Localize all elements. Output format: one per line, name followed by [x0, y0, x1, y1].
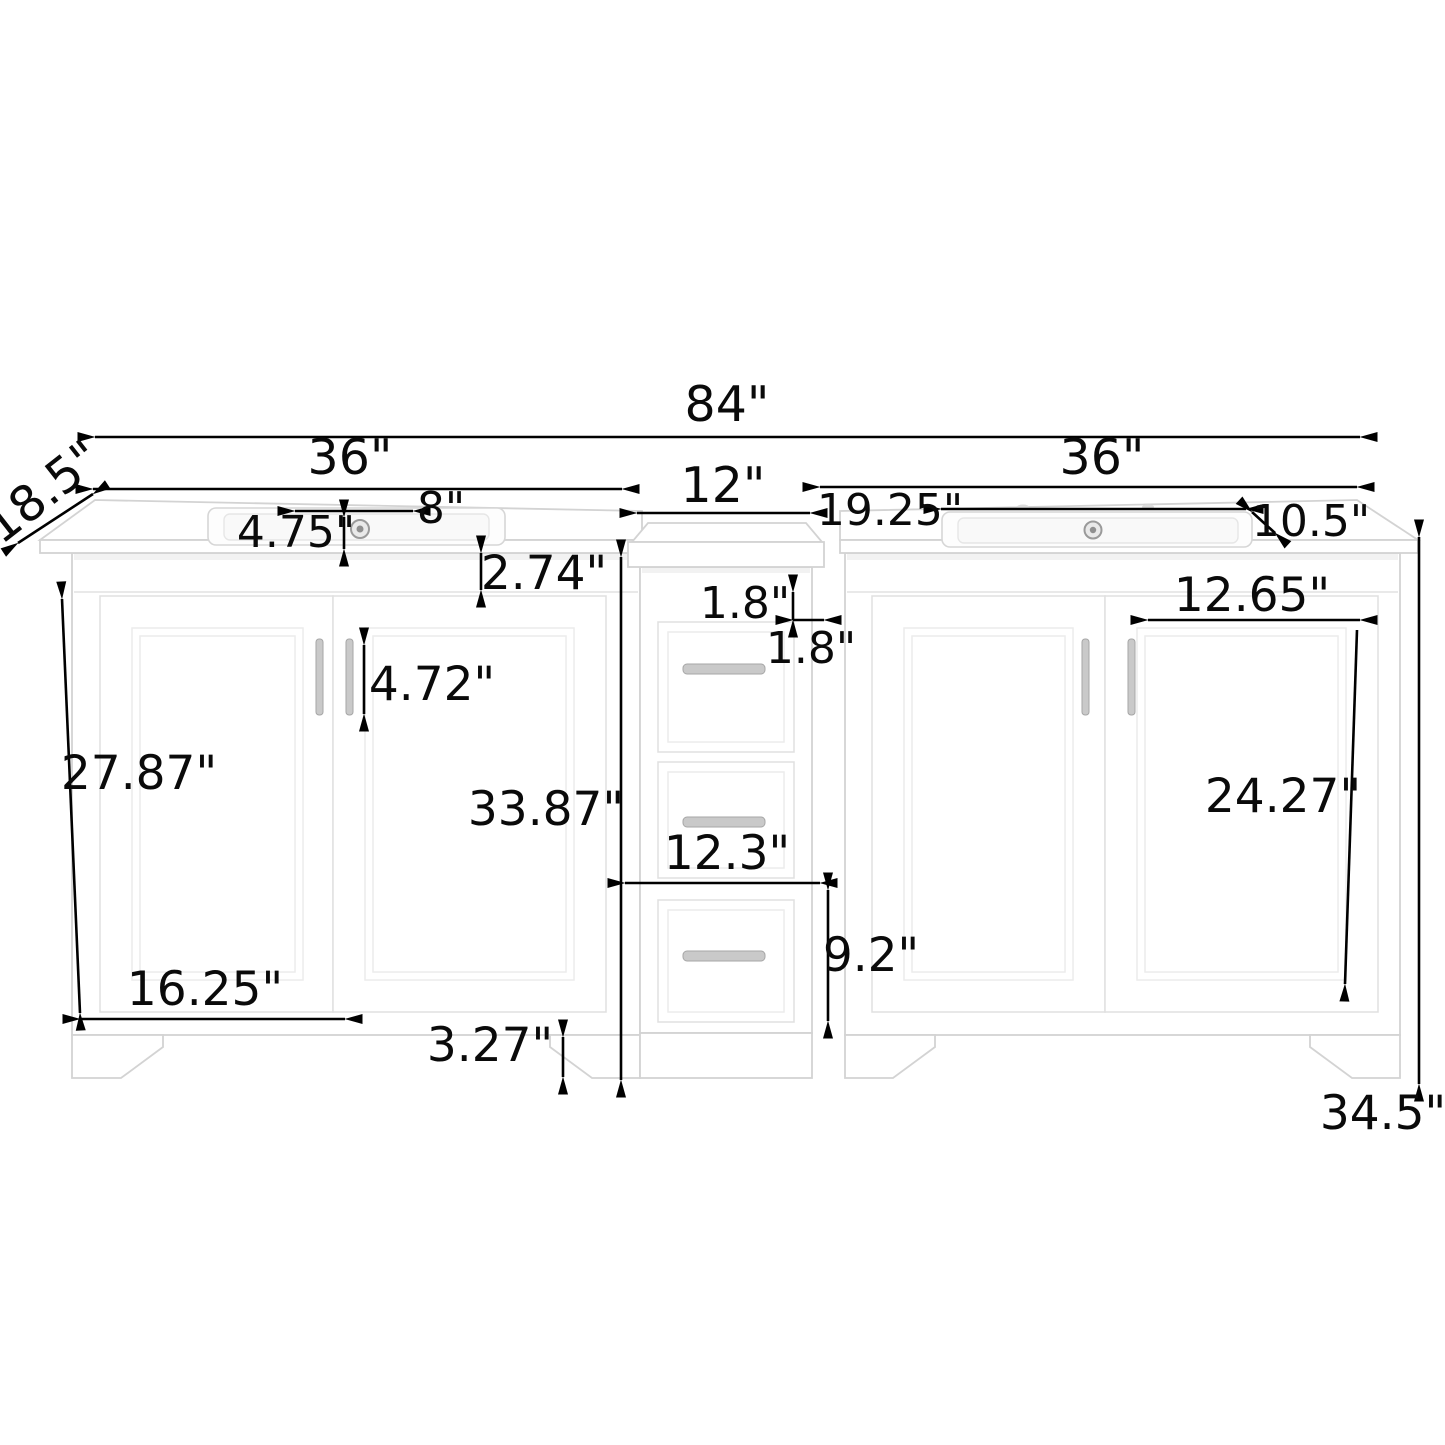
tower-top-edge [628, 542, 824, 567]
dim-right-vanity-width-label: 36" [1060, 429, 1145, 486]
dim-handle-length-label: 4.72" [369, 657, 495, 712]
right-vanity-right-door-handle [1128, 639, 1135, 715]
dim-center-drawer-width-label: 12.3" [664, 826, 790, 881]
right-vanity-left-door-handle [1082, 639, 1089, 715]
dim-right-door-height-label: 24.27" [1205, 769, 1361, 824]
dim-faucet-setback: 4.75" [237, 507, 355, 558]
dim-right-counter-right-offset: 10.5" [1252, 496, 1370, 547]
tower-drawer-3-handle [683, 951, 765, 961]
left-vanity-left-foot [72, 1035, 163, 1078]
dim-toe-kick-height-label: 3.27" [427, 1018, 553, 1073]
left-vanity-left-door-handle [316, 639, 323, 715]
left-vanity-left-door [100, 596, 333, 1012]
tower-counter-shadow [642, 568, 810, 573]
right-vanity-right-foot [1310, 1035, 1400, 1078]
dim-overall-width: 84" [95, 376, 1360, 437]
dim-right-sink-left-offset-label: 19.25" [817, 485, 963, 536]
dim-top-rail-height: 1.8" [700, 578, 793, 629]
dim-left-door-width-label: 16.25" [127, 962, 283, 1017]
tower-drawer-1-handle [683, 664, 765, 674]
right-vanity-counter-shadow [847, 554, 1398, 560]
dim-side-stile-width: 1.8" [766, 620, 856, 674]
dim-right-door-panel-width: 12.65" [1148, 568, 1360, 623]
dim-cabinet-body-height-label: 33.87" [468, 782, 624, 837]
right-faucet-hole-center [1090, 527, 1096, 533]
dim-right-door-panel-width-label: 12.65" [1174, 568, 1330, 623]
dim-right-counter-right-offset-label: 10.5" [1252, 496, 1370, 547]
dim-counter-apron-height: 2.74" [481, 546, 607, 601]
vanity-dimension-diagram: 84" 36" 36" 12" 18.5" 8" 4.75" 2 [0, 0, 1445, 1445]
tower-top-surface [632, 523, 822, 542]
dim-side-stile-width-label: 1.8" [766, 623, 856, 674]
dim-center-cabinet-width: 12" [637, 457, 810, 514]
dim-top-rail-height-label: 1.8" [700, 578, 790, 629]
dim-left-door-height-label: 27.87" [61, 746, 217, 801]
dim-faucet-spread-label: 8" [417, 483, 465, 534]
right-vanity-left-foot [845, 1035, 935, 1078]
dim-overall-width-label: 84" [685, 376, 770, 433]
left-faucet-hole-center [357, 526, 364, 533]
dim-bottom-drawer-height-label: 9.2" [823, 928, 919, 983]
left-vanity-right-door-handle [346, 639, 353, 715]
dim-faucet-setback-label: 4.75" [237, 507, 355, 558]
dim-counter-apron-height-label: 2.74" [481, 546, 607, 601]
dim-center-cabinet-width-label: 12" [681, 457, 766, 514]
tower-plinth [640, 1033, 812, 1078]
dim-left-vanity-width-label: 36" [308, 429, 393, 486]
diagram-canvas: 84" 36" 36" 12" 18.5" 8" 4.75" 2 [0, 0, 1445, 1445]
dim-overall-height-label: 34.5" [1320, 1086, 1445, 1141]
dim-toe-kick-height: 3.27" [427, 1018, 563, 1077]
